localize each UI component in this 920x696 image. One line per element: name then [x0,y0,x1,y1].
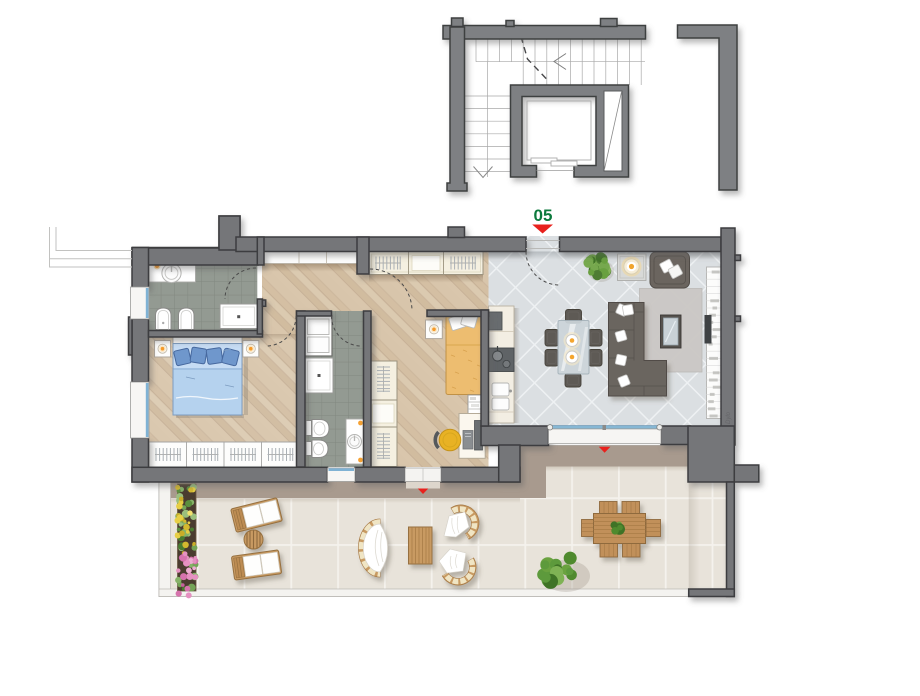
svg-text:05: 05 [534,206,553,225]
svg-text:Dylo: Dylo [726,411,732,424]
